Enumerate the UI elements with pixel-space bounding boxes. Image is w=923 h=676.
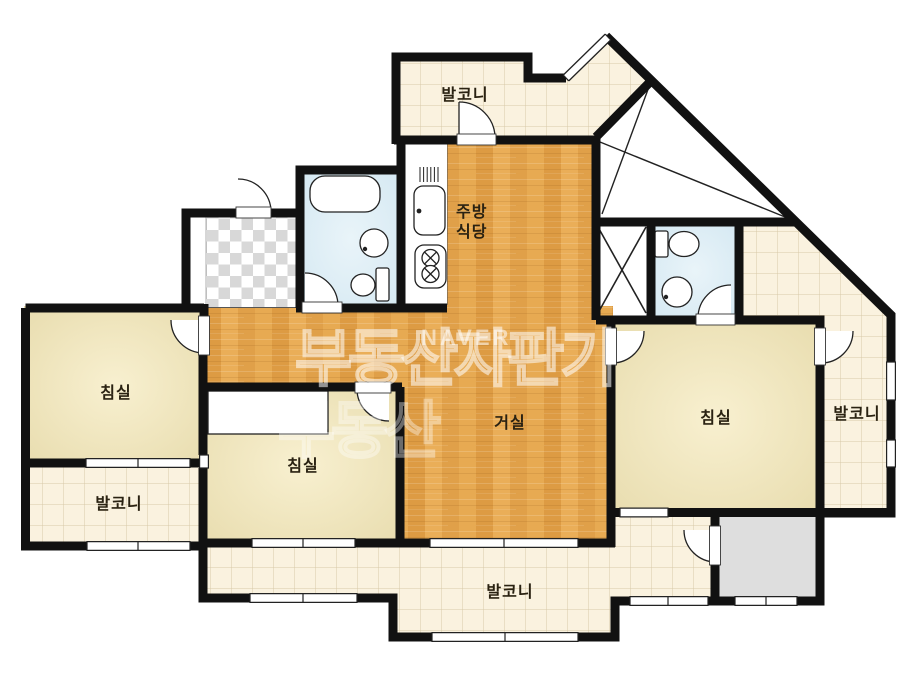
- bathtub: [310, 176, 380, 212]
- room-label-kitchen: 주방식당: [456, 203, 487, 243]
- washbasin-second: [662, 277, 692, 307]
- washbasin-main: [360, 229, 388, 257]
- toilet-main-bowl: [351, 274, 375, 296]
- toilet-second-tank: [655, 231, 668, 257]
- room-label-bedroom-right: 침실: [700, 409, 731, 429]
- door-threshold-kitchen-balcony: [457, 134, 496, 145]
- room-label-balcony-right: 발코니: [833, 405, 880, 425]
- floor-plan-image: 부동산자판기 부동산 NAVER 발코니 주방식당 침실 발코니 침실 거실 침…: [0, 0, 923, 676]
- door-threshold-bathroom-main: [302, 302, 342, 313]
- washbasin-main-faucet-icon: [363, 247, 367, 251]
- door-threshold-bathroom-second: [696, 314, 735, 325]
- kitchen-faucet-icon: [417, 209, 422, 214]
- door-leaf-bedroom-left: [199, 316, 210, 355]
- watermark-brand-text-partial: 부동산: [278, 397, 440, 466]
- room-label-bedroom-middle: 침실: [287, 457, 318, 477]
- door-leaf-balcony-right: [815, 328, 826, 365]
- room-label-balcony-top: 발코니: [441, 86, 488, 106]
- balcony-bottom-floor-a: [201, 541, 615, 600]
- toilet-main-tank: [376, 268, 389, 301]
- kitchen-label-line2: 식당: [456, 224, 487, 241]
- room-label-living-room: 거실: [494, 414, 525, 434]
- toilet-second-bowl: [669, 232, 699, 257]
- door-leaf-utility: [710, 526, 721, 565]
- room-label-bedroom-left: 침실: [100, 384, 131, 404]
- room-label-balcony-bottom: 발코니: [486, 583, 533, 603]
- duct-x-box: [598, 227, 646, 313]
- entrance-floor: [206, 217, 296, 308]
- room-label-balcony-left: 발코니: [95, 495, 142, 515]
- watermark-naver-logo: NAVER: [421, 325, 511, 350]
- utility-room-floor: [715, 515, 818, 599]
- washbasin-second-faucet-icon: [664, 295, 668, 299]
- shoe-cabinet: [189, 217, 206, 306]
- door-threshold-entrance: [236, 207, 271, 218]
- kitchen-label-line1: 주방: [456, 204, 487, 221]
